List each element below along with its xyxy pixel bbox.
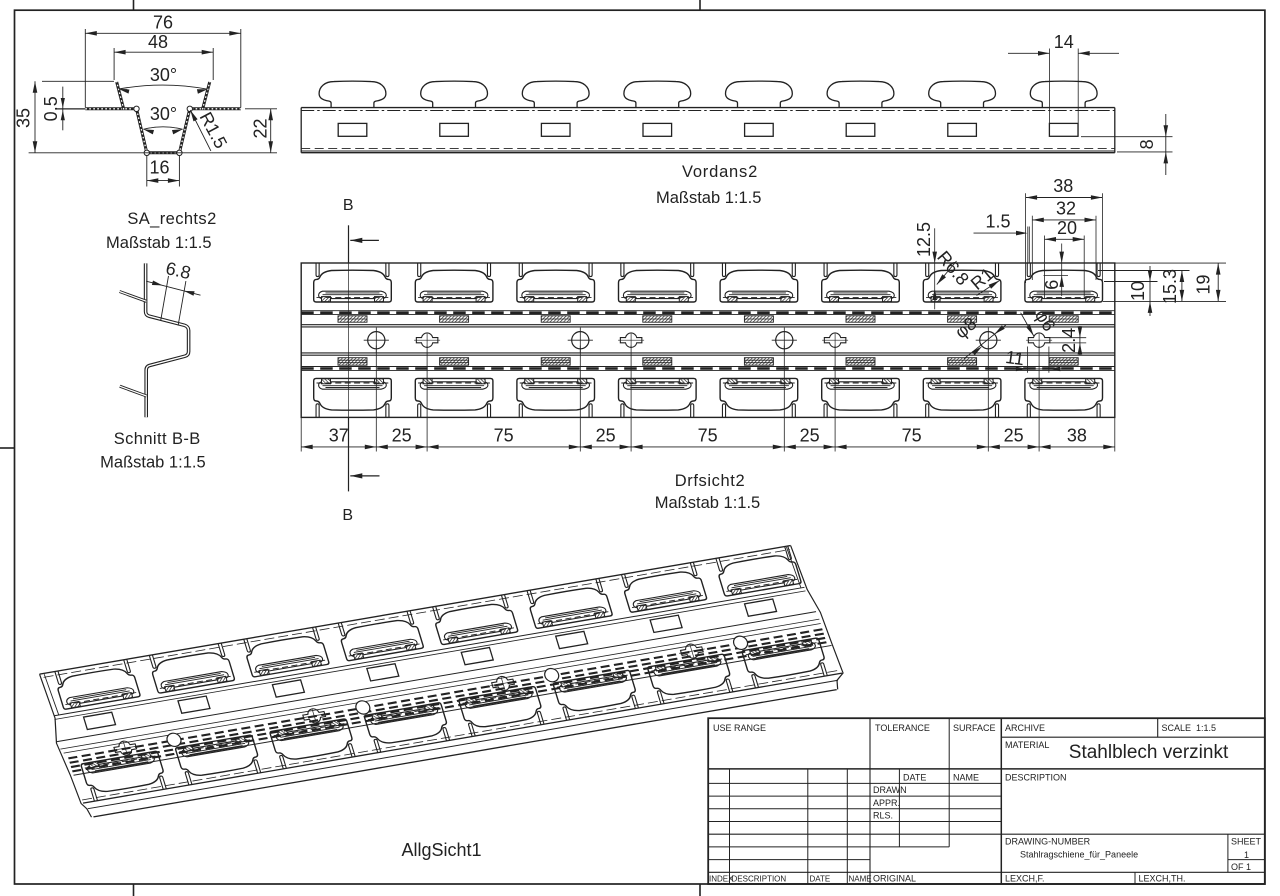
svg-text:32: 32 <box>1056 199 1076 219</box>
svg-text:DRAWN: DRAWN <box>873 785 907 795</box>
svg-text:RLS.: RLS. <box>873 811 893 821</box>
svg-text:MATERIAL: MATERIAL <box>1005 740 1049 750</box>
svg-text:LEXCH,TH.: LEXCH,TH. <box>1139 874 1186 884</box>
svg-text:DRAWING-NUMBER: DRAWING-NUMBER <box>1005 837 1091 847</box>
svg-text:DESCRIPTION: DESCRIPTION <box>1005 773 1067 783</box>
svg-text:USE RANGE: USE RANGE <box>713 723 766 733</box>
svg-text:1: 1 <box>1244 850 1249 860</box>
svg-text:Drfsicht2: Drfsicht2 <box>675 472 746 490</box>
svg-text:75: 75 <box>902 426 922 446</box>
svg-text:Maßstab 1:1.5: Maßstab 1:1.5 <box>106 234 211 252</box>
svg-text:Maßstab 1:1.5: Maßstab 1:1.5 <box>656 189 761 207</box>
svg-text:25: 25 <box>800 426 820 446</box>
svg-text:APPR.: APPR. <box>873 798 900 808</box>
svg-text:B: B <box>343 197 354 214</box>
svg-text:38: 38 <box>1067 426 1087 446</box>
svg-text:Schnitt B-B: Schnitt B-B <box>114 430 201 448</box>
svg-text:DESCRIPTION: DESCRIPTION <box>732 874 787 883</box>
svg-text:75: 75 <box>494 426 514 446</box>
svg-text:76: 76 <box>153 13 173 33</box>
svg-text:DATE: DATE <box>903 773 926 783</box>
svg-text:11: 11 <box>1004 347 1025 369</box>
svg-text:48: 48 <box>148 32 168 52</box>
svg-text:ORIGINAL: ORIGINAL <box>873 874 916 884</box>
svg-text:25: 25 <box>392 426 412 446</box>
svg-text:ARCHIVE: ARCHIVE <box>1005 723 1045 733</box>
svg-text:19: 19 <box>1194 274 1214 294</box>
svg-text:Maßstab 1:1.5: Maßstab 1:1.5 <box>655 494 760 512</box>
svg-text:AllgSicht1: AllgSicht1 <box>401 840 481 860</box>
svg-text:38: 38 <box>1053 176 1073 196</box>
svg-text:SURFACE: SURFACE <box>953 723 996 733</box>
svg-text:Stahlragschiene_für_Paneele: Stahlragschiene_für_Paneele <box>1020 850 1138 860</box>
svg-text:SHEET: SHEET <box>1231 837 1262 847</box>
svg-text:15.3: 15.3 <box>1160 269 1180 304</box>
svg-text:14: 14 <box>1054 32 1074 52</box>
svg-text:30°: 30° <box>150 104 177 124</box>
svg-text:12.5: 12.5 <box>914 222 934 257</box>
svg-text:LEXCH,F.: LEXCH,F. <box>1005 874 1045 884</box>
svg-text:22: 22 <box>251 118 271 138</box>
svg-text:B: B <box>342 507 353 524</box>
svg-text:2.4: 2.4 <box>1059 328 1079 353</box>
svg-text:Vordans2: Vordans2 <box>682 163 758 181</box>
svg-text:1.5: 1.5 <box>985 212 1010 232</box>
svg-text:30°: 30° <box>150 65 177 85</box>
svg-text:10: 10 <box>1128 281 1148 301</box>
svg-text:NAME: NAME <box>953 773 979 783</box>
svg-text:8: 8 <box>1137 139 1157 149</box>
svg-text:DATE: DATE <box>810 874 831 883</box>
svg-text:Maßstab 1:1.5: Maßstab 1:1.5 <box>100 454 205 472</box>
svg-text:16: 16 <box>149 158 169 178</box>
svg-text:OF 1: OF 1 <box>1231 862 1251 872</box>
svg-text:Stahlblech verzinkt: Stahlblech verzinkt <box>1069 742 1229 763</box>
svg-text:SA_rechts2: SA_rechts2 <box>127 210 216 228</box>
svg-text:20: 20 <box>1057 218 1077 238</box>
svg-text:35: 35 <box>14 108 34 128</box>
svg-text:NAME: NAME <box>849 874 872 883</box>
svg-text:37: 37 <box>329 426 349 446</box>
svg-text:INDEX: INDEX <box>709 874 734 883</box>
svg-text:25: 25 <box>596 426 616 446</box>
svg-text:TOLERANCE: TOLERANCE <box>875 723 930 733</box>
svg-text:75: 75 <box>698 426 718 446</box>
svg-text:6: 6 <box>1042 280 1062 290</box>
svg-text:SCALE 1:1.5: SCALE 1:1.5 <box>1162 723 1217 733</box>
svg-text:25: 25 <box>1004 426 1024 446</box>
